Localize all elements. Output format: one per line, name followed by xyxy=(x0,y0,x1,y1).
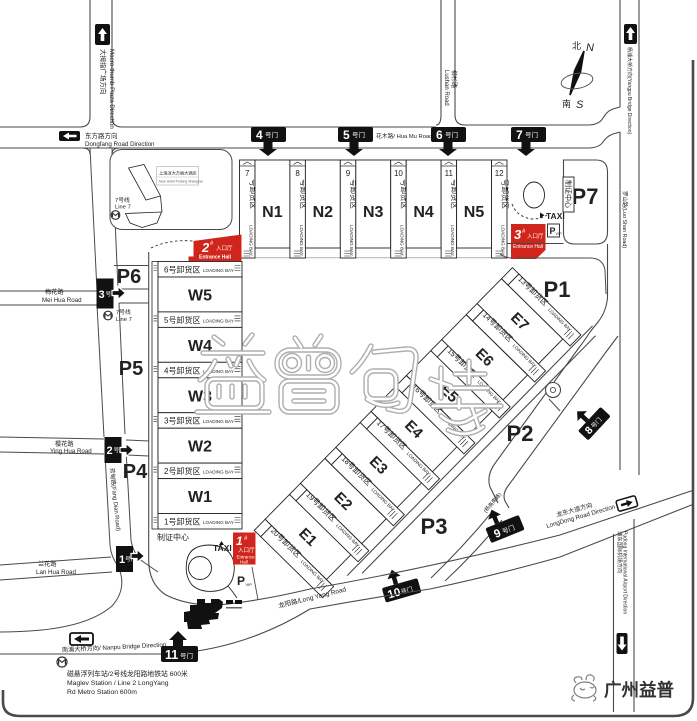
svg-text:P3: P3 xyxy=(421,514,448,539)
svg-text:7: 7 xyxy=(245,169,250,178)
svg-text:New Hotel Pudong Shanghai: New Hotel Pudong Shanghai xyxy=(159,180,203,184)
svg-text:N3: N3 xyxy=(363,204,384,221)
svg-text:LOADING BAY: LOADING BAY xyxy=(203,268,234,273)
svg-text:LOADING BAY: LOADING BAY xyxy=(203,470,234,475)
svg-text:11: 11 xyxy=(165,648,178,662)
svg-text:东方路方向: 东方路方向 xyxy=(85,131,118,140)
svg-text:P6: P6 xyxy=(117,266,141,288)
svg-text:7号线: 7号线 xyxy=(115,196,130,204)
svg-text:1号卸货区: 1号卸货区 xyxy=(164,517,200,527)
svg-text:大拇指广场方向: 大拇指广场方向 xyxy=(99,49,108,95)
svg-text:P2: P2 xyxy=(507,421,534,446)
svg-text:2: 2 xyxy=(201,240,210,255)
svg-text:Entrance Hall: Entrance Hall xyxy=(199,255,232,261)
svg-text:上海淳大万丽大酒店: 上海淳大万丽大酒店 xyxy=(159,170,197,177)
svg-text:3: 3 xyxy=(99,289,105,301)
svg-text:P4: P4 xyxy=(123,461,148,483)
svg-text:3号卸货区: 3号卸货区 xyxy=(164,416,200,426)
svg-text:号门: 号门 xyxy=(180,651,193,660)
svg-text:北: 北 xyxy=(572,41,581,51)
svg-text:入口厅: 入口厅 xyxy=(238,547,255,554)
svg-text:入口厅: 入口厅 xyxy=(216,245,233,252)
svg-text:4: 4 xyxy=(256,128,263,142)
svg-text:2号卸货区: 2号卸货区 xyxy=(164,466,200,476)
svg-text:杨浦大桥方向(Yangpu Bridge Direction: 杨浦大桥方向(Yangpu Bridge Direction) xyxy=(626,47,633,134)
svg-text:Hall: Hall xyxy=(240,560,248,565)
svg-text:号卸货区: 号卸货区 xyxy=(500,179,510,209)
svg-text:Pudong International Airport D: Pudong International Airport Direction xyxy=(622,531,628,614)
svg-text:12: 12 xyxy=(495,169,504,178)
svg-text:10: 10 xyxy=(394,169,403,178)
svg-text:VIP: VIP xyxy=(556,232,563,236)
svg-text:Rd Metro Station 600m: Rd Metro Station 600m xyxy=(67,689,137,696)
svg-text:Line 7: Line 7 xyxy=(116,317,132,323)
svg-text:N1: N1 xyxy=(262,204,283,221)
svg-text:7: 7 xyxy=(516,128,523,142)
svg-text:制证中心: 制证中心 xyxy=(157,532,189,542)
svg-text:Dongfang Road Direction: Dongfang Road Direction xyxy=(85,141,155,148)
svg-text:LOADING BAY: LOADING BAY xyxy=(203,318,234,323)
svg-text:N5: N5 xyxy=(464,204,485,221)
svg-text:号门: 号门 xyxy=(525,130,538,139)
svg-text:W2: W2 xyxy=(188,439,212,456)
svg-text:Mei Hua Road: Mei Hua Road xyxy=(42,297,82,304)
svg-text:TAXI: TAXI xyxy=(213,543,232,553)
svg-text:Macro-thumb Plaza Direction: Macro-thumb Plaza Direction xyxy=(108,49,115,129)
svg-text:罗山路(Luo Shan Road): 罗山路(Luo Shan Road) xyxy=(621,191,629,248)
svg-text:TAXI: TAXI xyxy=(546,211,565,221)
svg-text:南: 南 xyxy=(562,98,571,109)
svg-text:5: 5 xyxy=(343,128,350,142)
svg-text:P7: P7 xyxy=(572,184,599,209)
svg-text:2: 2 xyxy=(107,445,113,457)
svg-text:8: 8 xyxy=(295,169,300,178)
svg-text:N2: N2 xyxy=(313,204,334,221)
svg-text:Maglev Station / Line 2 LongY: Maglev Station / Line 2 LongYang xyxy=(67,680,169,687)
svg-text:N4: N4 xyxy=(413,204,434,221)
svg-text:VIP: VIP xyxy=(246,582,253,587)
svg-text:梅花路: 梅花路 xyxy=(45,288,64,296)
svg-text:Lan Hua Road: Lan Hua Road xyxy=(36,569,76,576)
svg-text:W1: W1 xyxy=(188,489,212,506)
svg-text:Line 7: Line 7 xyxy=(115,205,131,211)
svg-text:广州益普: 广州益普 xyxy=(604,680,674,700)
svg-text:S: S xyxy=(576,99,584,111)
svg-text:入口厅: 入口厅 xyxy=(527,233,544,240)
svg-text:4号卸货区: 4号卸货区 xyxy=(164,365,200,375)
svg-text:LOADING BAY: LOADING BAY xyxy=(203,419,234,424)
svg-text:花木路/ Hua Mu Road: 花木路/ Hua Mu Road xyxy=(376,132,432,140)
svg-text:N: N xyxy=(586,42,594,54)
svg-text:柳杉路: 柳杉路 xyxy=(450,70,458,88)
svg-text:Entrance Hall: Entrance Hall xyxy=(513,244,543,250)
svg-text:3: 3 xyxy=(514,227,522,242)
svg-text:号门: 号门 xyxy=(352,130,365,139)
svg-text:W5: W5 xyxy=(188,288,212,305)
svg-text:Lushan Road: Lushan Road xyxy=(443,70,449,106)
svg-text:制证中心: 制证中心 xyxy=(564,180,573,208)
svg-text:6: 6 xyxy=(436,128,443,142)
svg-text:5号卸货区: 5号卸货区 xyxy=(164,315,200,325)
svg-text:P: P xyxy=(237,574,245,588)
svg-text:7号线: 7号线 xyxy=(116,308,131,316)
svg-text:P1: P1 xyxy=(544,277,571,302)
svg-text:11: 11 xyxy=(445,169,454,178)
svg-text:樱花路: 樱花路 xyxy=(55,440,74,448)
svg-text:LOADING BAY: LOADING BAY xyxy=(203,520,234,525)
svg-text:Ying Hua Road: Ying Hua Road xyxy=(50,448,92,455)
svg-text:号门: 号门 xyxy=(445,130,458,139)
svg-text:P5: P5 xyxy=(119,358,143,380)
svg-text:6号卸货区: 6号卸货区 xyxy=(164,265,200,275)
svg-text:号门: 号门 xyxy=(265,130,278,139)
svg-text:9: 9 xyxy=(346,169,351,178)
svg-text:磁悬浮列车站/2号线龙阳路地铁站 600米: 磁悬浮列车站/2号线龙阳路地铁站 600米 xyxy=(67,669,188,678)
svg-text:1: 1 xyxy=(236,534,243,548)
svg-text:兰花路: 兰花路 xyxy=(38,560,57,568)
